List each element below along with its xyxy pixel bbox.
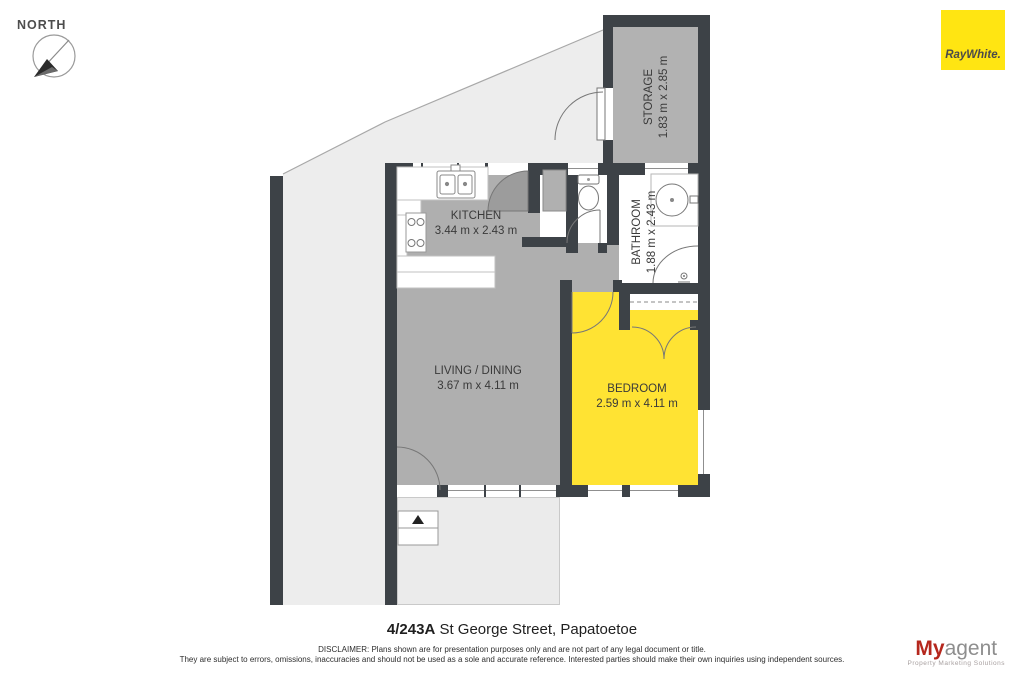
room-name: BEDROOM bbox=[596, 382, 678, 397]
disclaimer: DISCLAIMER: Plans shown are for presenta… bbox=[0, 645, 1024, 664]
room-dims: 3.67 m x 4.11 m bbox=[434, 379, 522, 394]
wc-door bbox=[567, 210, 600, 243]
myagent-tagline: Property Marketing Solutions bbox=[908, 660, 1005, 667]
storage-label: STORAGE 1.83 m x 2.85 m bbox=[642, 56, 672, 138]
room-dims: 1.83 m x 2.85 m bbox=[657, 56, 672, 138]
room-dims: 3.44 m x 2.43 m bbox=[435, 224, 517, 239]
floor-plan: KITCHEN 3.44 m x 2.43 m LIVING / DINING … bbox=[0, 0, 1024, 683]
myagent-wordmark: Myagent bbox=[908, 638, 1005, 659]
disclaimer-line-1: DISCLAIMER: Plans shown are for presenta… bbox=[0, 645, 1024, 655]
storage-door bbox=[555, 88, 605, 140]
living-label: LIVING / DINING 3.67 m x 4.11 m bbox=[434, 364, 522, 394]
myagent-logo: Myagent Property Marketing Solutions bbox=[908, 638, 1005, 667]
room-name: LIVING / DINING bbox=[434, 364, 522, 379]
room-dims: 2.59 m x 4.11 m bbox=[596, 397, 678, 412]
stove-icon bbox=[406, 213, 426, 252]
lot-boundary-line bbox=[283, 30, 603, 174]
room-name: BATHROOM bbox=[630, 191, 645, 273]
property-address: 4/243A St George Street, Papatoetoe bbox=[0, 621, 1024, 638]
backdoor-swing bbox=[488, 171, 528, 211]
address-unit-number: 4/243A bbox=[387, 621, 435, 638]
bedroom-door bbox=[572, 292, 613, 333]
steps-icon bbox=[398, 511, 438, 545]
fridge-icon bbox=[543, 170, 566, 211]
wardrobe-doors bbox=[630, 302, 698, 359]
address-street: St George Street, Papatoetoe bbox=[435, 621, 637, 638]
room-name: STORAGE bbox=[642, 56, 657, 138]
bedroom-label: BEDROOM 2.59 m x 4.11 m bbox=[596, 382, 678, 412]
bathroom-label: BATHROOM 1.88 m x 2.43 m bbox=[630, 191, 660, 273]
kitchen-label: KITCHEN 3.44 m x 2.43 m bbox=[435, 209, 517, 239]
toilet-icon bbox=[578, 175, 599, 210]
room-name: KITCHEN bbox=[435, 209, 517, 224]
disclaimer-line-2: They are subject to errors, omissions, i… bbox=[0, 655, 1024, 665]
entry-door-swing bbox=[397, 447, 440, 490]
floorplan-flyer: NORTH RayWhite. bbox=[0, 0, 1024, 683]
fixtures-layer bbox=[0, 0, 1024, 683]
room-dims: 1.88 m x 2.43 m bbox=[645, 191, 660, 273]
